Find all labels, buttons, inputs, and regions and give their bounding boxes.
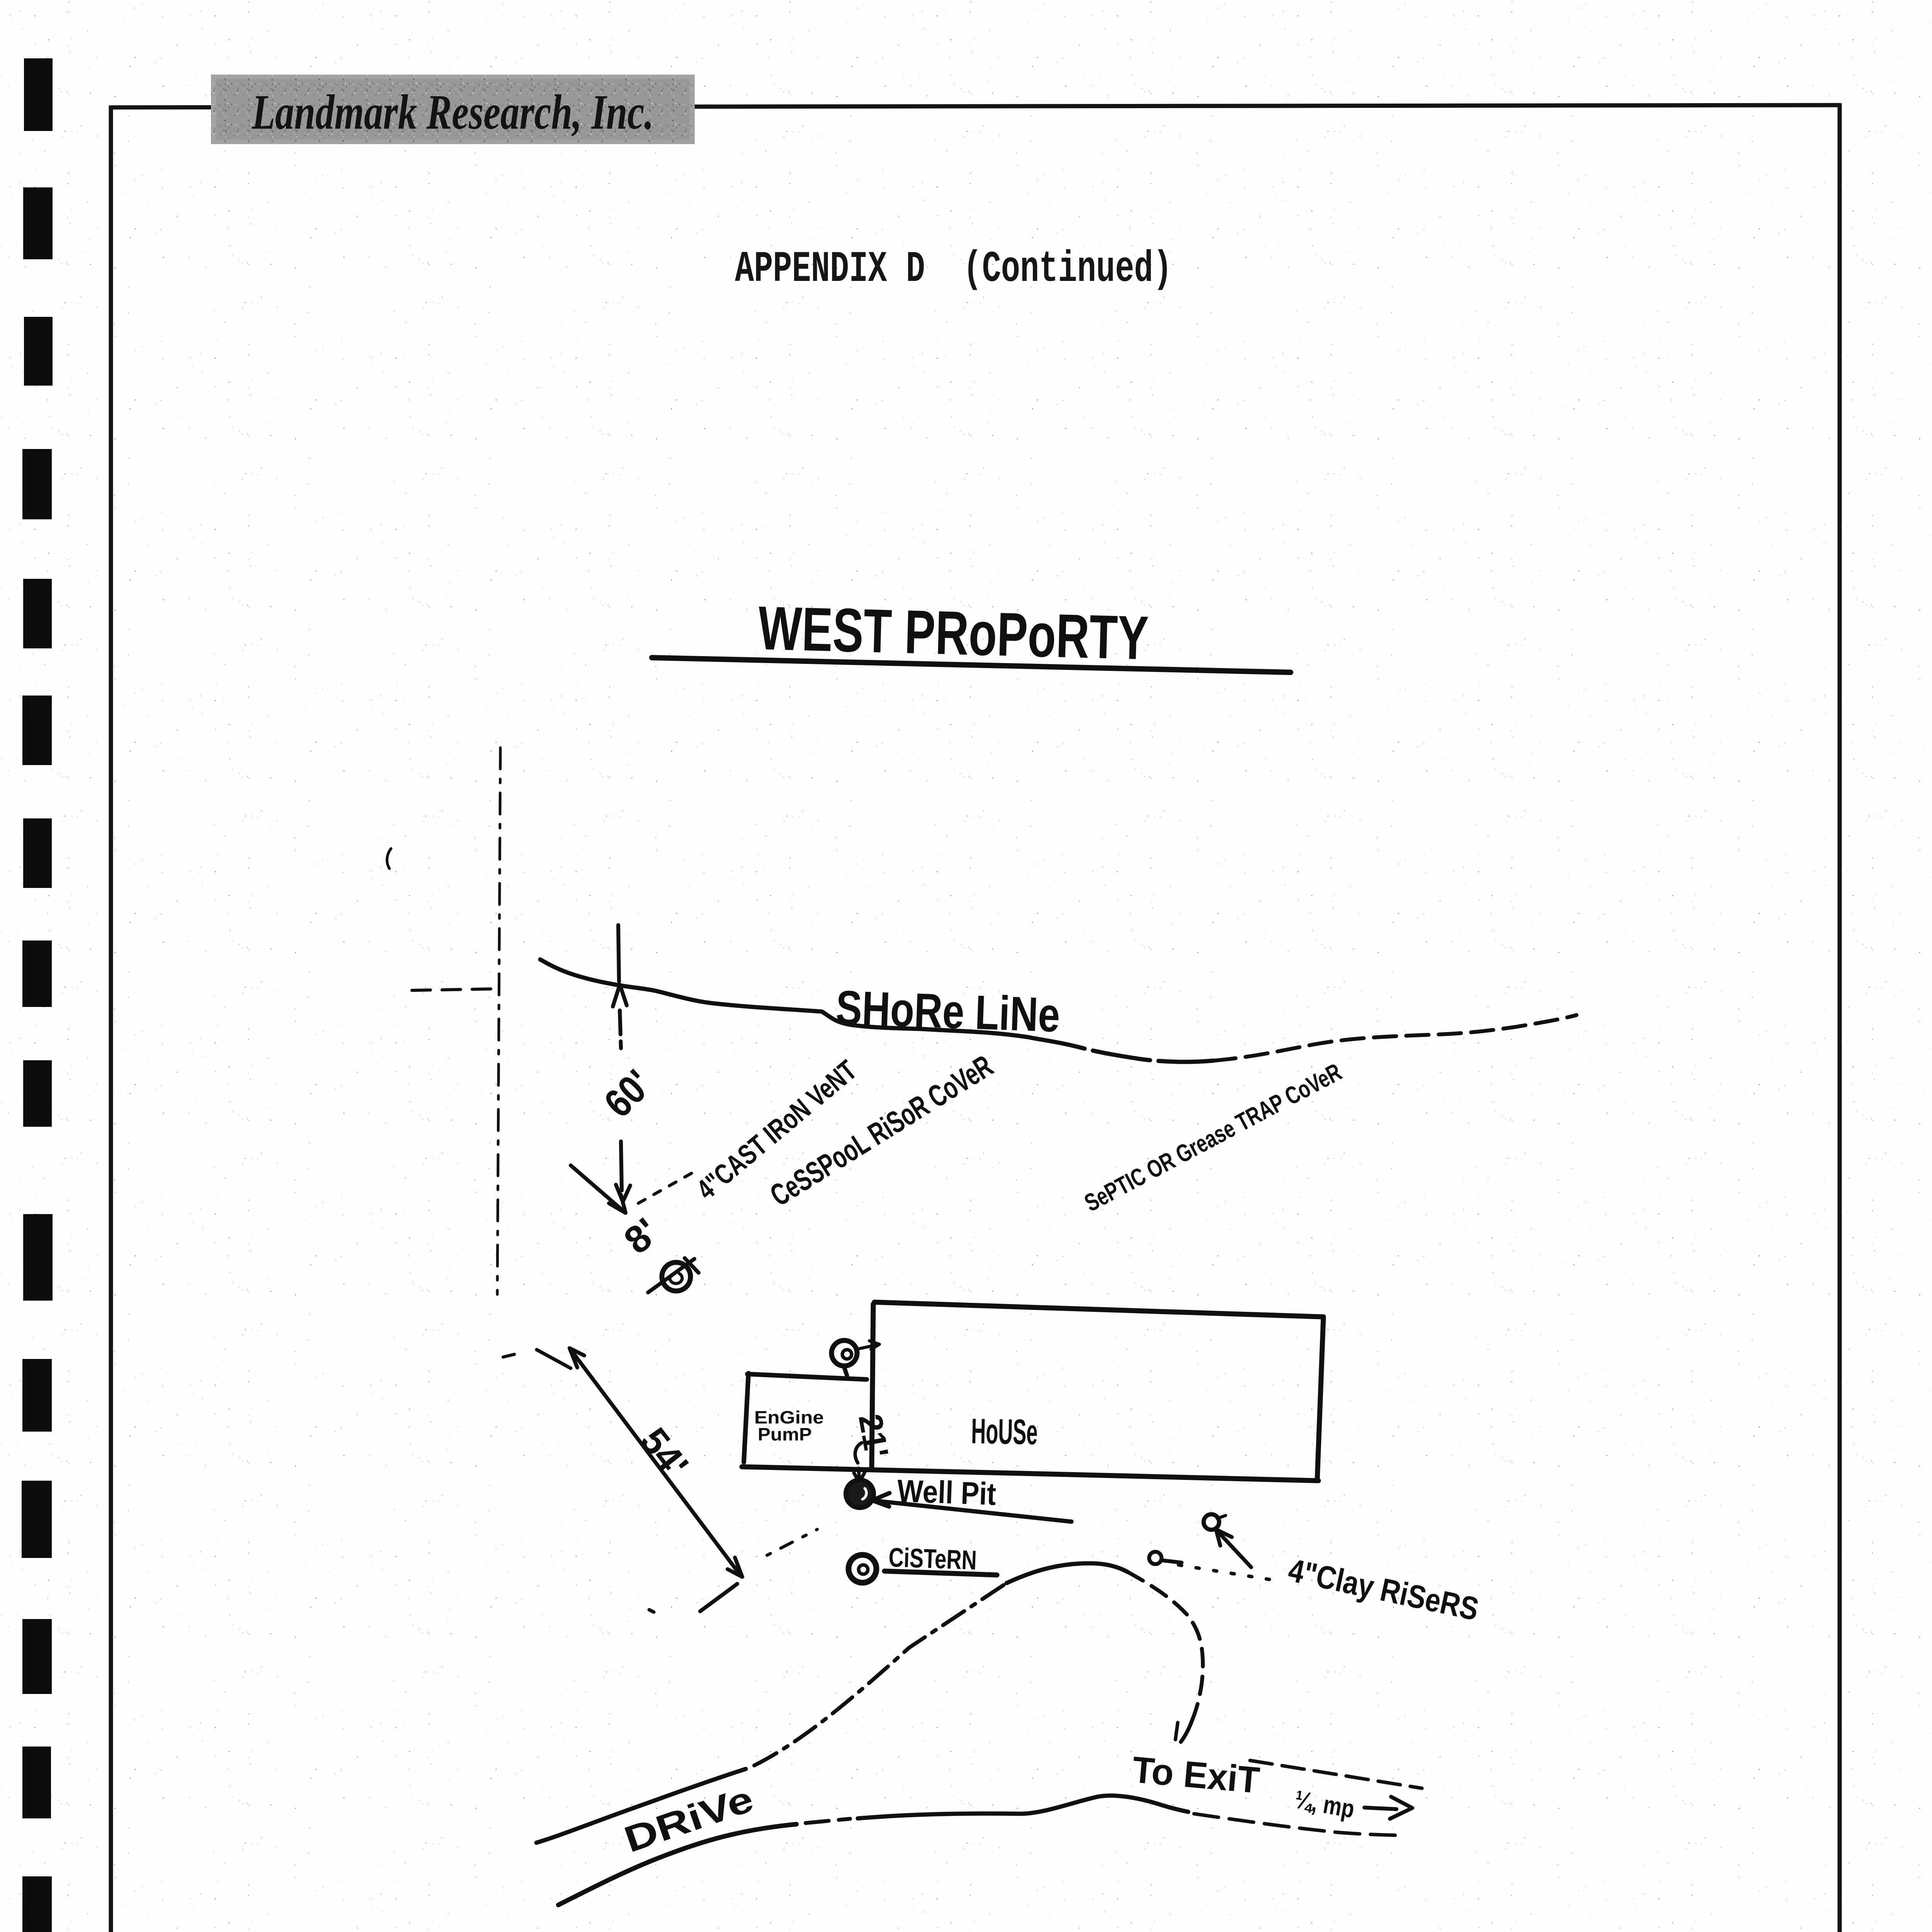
svg-text:SHoRe LiNe: SHoRe LiNe [835, 981, 1061, 1042]
svg-text:Landmark Research, Inc.: Landmark Research, Inc. [252, 85, 654, 139]
svg-text:APPENDIX D (Continued): APPENDIX D (Continued) [735, 245, 1172, 294]
svg-text:PumP: PumP [758, 1424, 812, 1444]
svg-text:21': 21' [851, 1412, 895, 1461]
svg-text:HoUSe: HoUSe [971, 1412, 1038, 1452]
